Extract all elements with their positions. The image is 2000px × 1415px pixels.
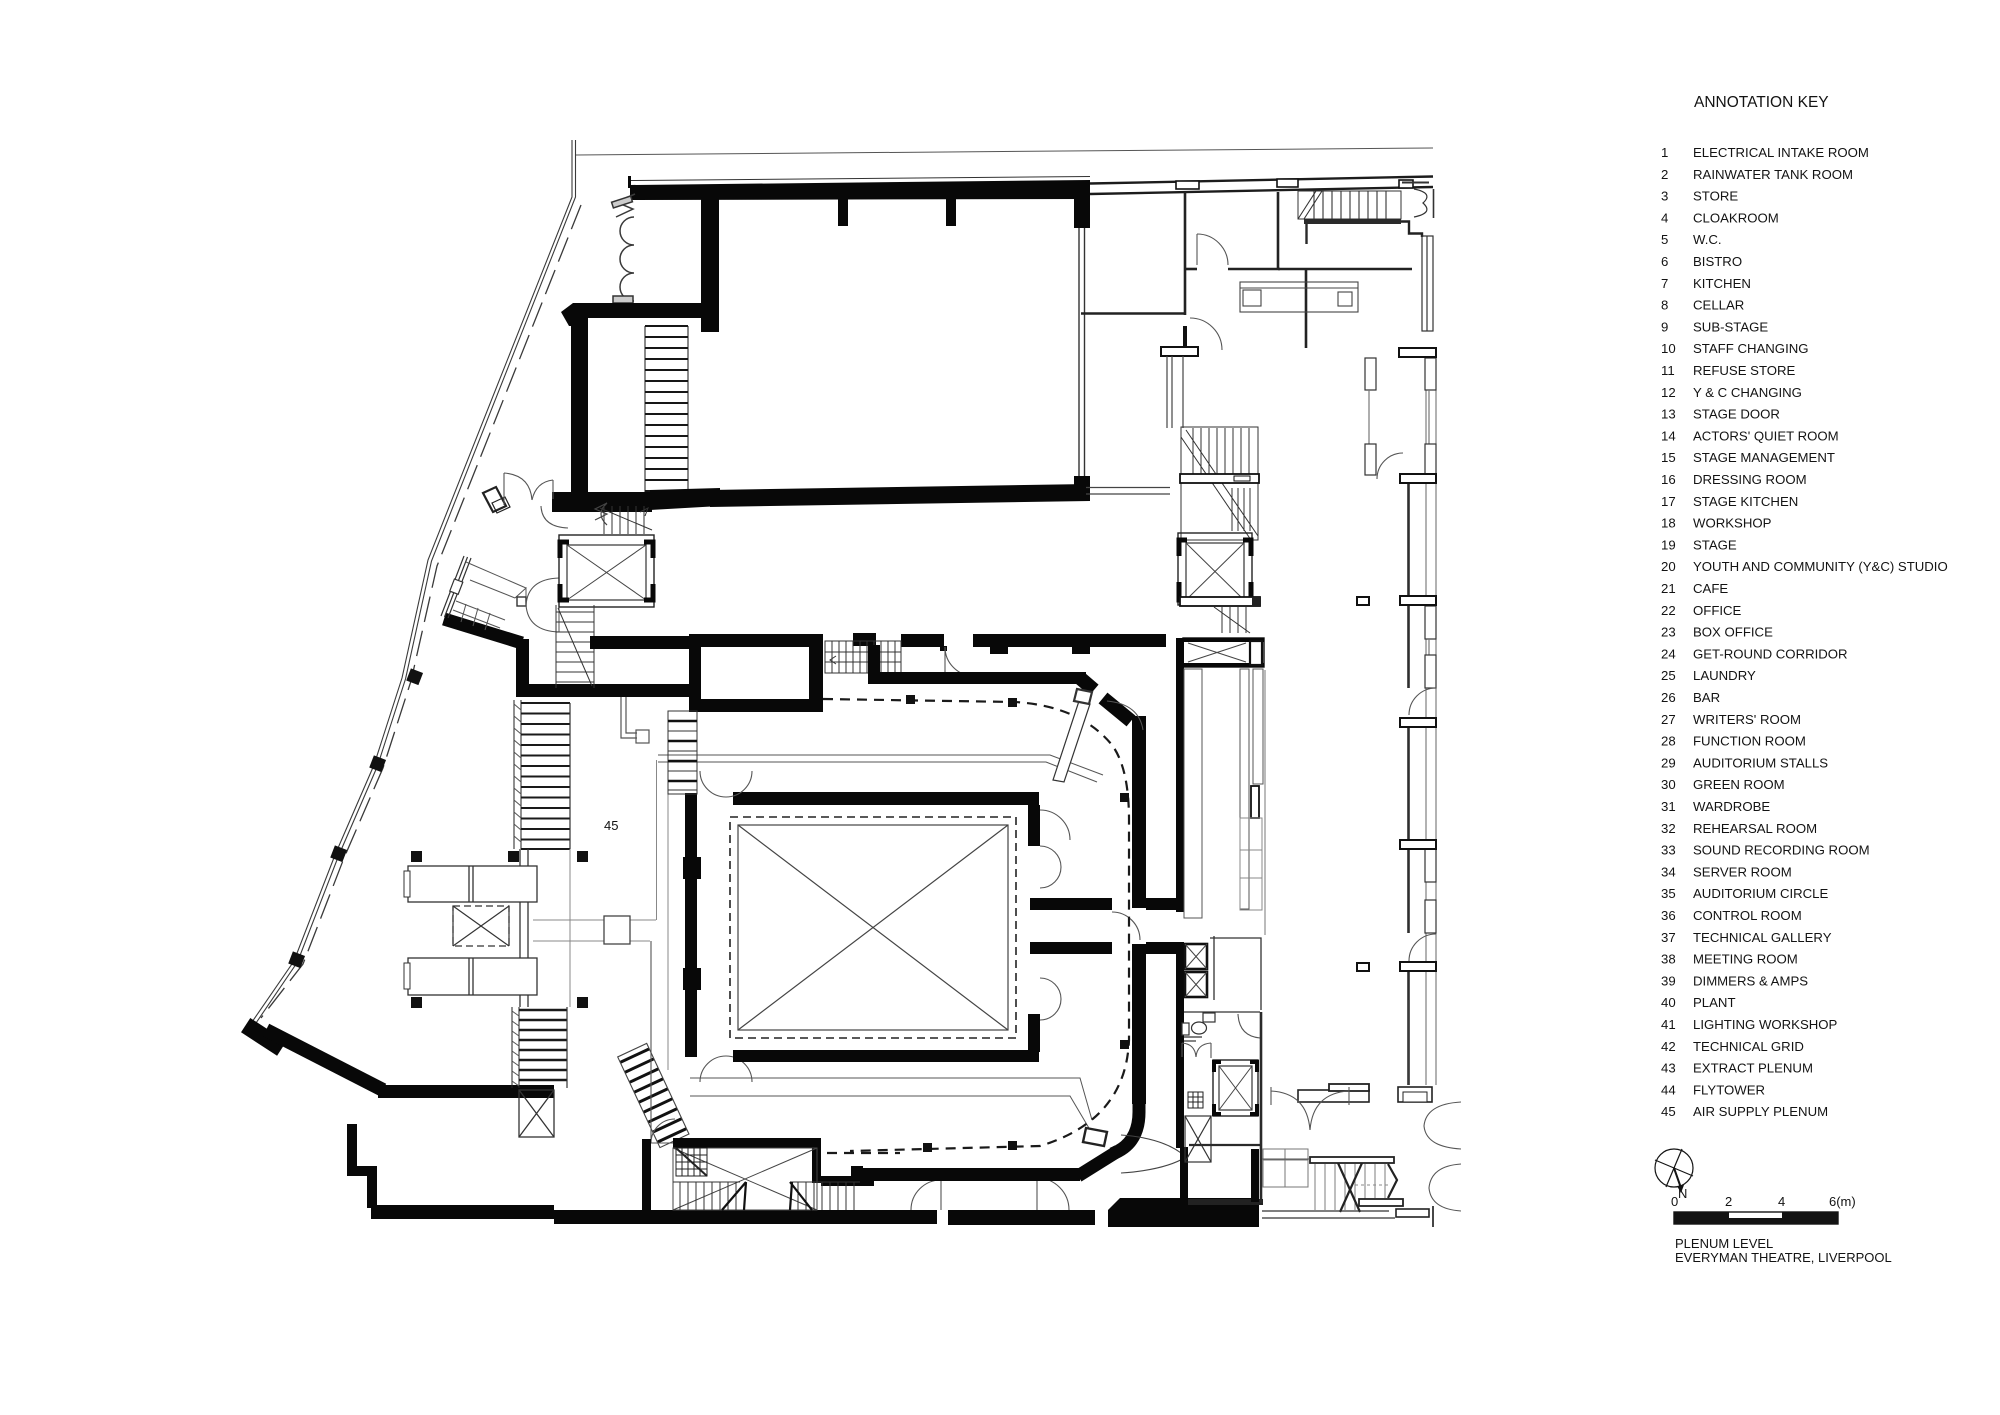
svg-text:20: 20 [1661,559,1676,574]
svg-text:STAGE MANAGEMENT: STAGE MANAGEMENT [1693,450,1835,465]
svg-text:30: 30 [1661,777,1676,792]
svg-text:EXTRACT PLENUM: EXTRACT PLENUM [1693,1061,1813,1076]
svg-text:BAR: BAR [1693,690,1720,705]
svg-text:10: 10 [1661,341,1676,356]
svg-text:Y & C CHANGING: Y & C CHANGING [1693,385,1802,400]
svg-text:W.C.: W.C. [1693,232,1722,247]
svg-text:22: 22 [1661,603,1676,618]
svg-text:REHEARSAL ROOM: REHEARSAL ROOM [1693,821,1817,836]
svg-text:14: 14 [1661,428,1676,443]
svg-text:STORE: STORE [1693,189,1738,204]
svg-text:42: 42 [1661,1039,1676,1054]
svg-text:N: N [1678,1186,1687,1201]
svg-text:WORKSHOP: WORKSHOP [1693,516,1772,531]
svg-text:SOUND RECORDING ROOM: SOUND RECORDING ROOM [1693,843,1870,858]
svg-text:40: 40 [1661,995,1676,1010]
svg-text:SUB-STAGE: SUB-STAGE [1693,319,1768,334]
svg-text:43: 43 [1661,1061,1676,1076]
svg-text:25: 25 [1661,668,1676,683]
svg-text:BOX OFFICE: BOX OFFICE [1693,625,1773,640]
svg-text:REFUSE STORE: REFUSE STORE [1693,363,1796,378]
svg-text:AIR SUPPLY PLENUM: AIR SUPPLY PLENUM [1693,1104,1828,1119]
svg-text:26: 26 [1661,690,1676,705]
svg-text:FLYTOWER: FLYTOWER [1693,1082,1765,1097]
svg-text:2: 2 [1661,167,1668,182]
svg-text:WRITERS' ROOM: WRITERS' ROOM [1693,712,1801,727]
svg-text:5: 5 [1661,232,1668,247]
svg-text:GET-ROUND CORRIDOR: GET-ROUND CORRIDOR [1693,646,1848,661]
svg-text:CAFE: CAFE [1693,581,1728,596]
svg-text:28: 28 [1661,734,1676,749]
svg-text:4: 4 [1661,210,1668,225]
svg-text:CONTROL ROOM: CONTROL ROOM [1693,908,1802,923]
svg-text:DIMMERS & AMPS: DIMMERS & AMPS [1693,973,1808,988]
svg-text:CLOAKROOM: CLOAKROOM [1693,210,1779,225]
svg-text:KITCHEN: KITCHEN [1693,276,1751,291]
svg-text:11: 11 [1661,363,1675,378]
svg-text:LIGHTING WORKSHOP: LIGHTING WORKSHOP [1693,1017,1838,1032]
svg-text:STAGE: STAGE [1693,537,1737,552]
svg-text:AUDITORIUM CIRCLE: AUDITORIUM CIRCLE [1693,886,1829,901]
svg-text:6(m): 6(m) [1829,1194,1856,1209]
svg-text:WARDROBE: WARDROBE [1693,799,1770,814]
svg-text:16: 16 [1661,472,1676,487]
svg-text:2: 2 [1725,1194,1732,1209]
svg-text:PLENUM LEVEL: PLENUM LEVEL [1675,1236,1773,1251]
svg-text:LAUNDRY: LAUNDRY [1693,668,1756,683]
svg-text:27: 27 [1661,712,1676,727]
svg-text:1: 1 [1661,145,1668,160]
svg-text:YOUTH AND COMMUNITY (Y&C) STUD: YOUTH AND COMMUNITY (Y&C) STUDIO [1693,559,1948,574]
svg-text:DRESSING ROOM: DRESSING ROOM [1693,472,1807,487]
svg-text:44: 44 [1661,1082,1676,1097]
svg-text:4: 4 [1778,1194,1785,1209]
svg-text:EVERYMAN THEATRE, LIVERPOOL: EVERYMAN THEATRE, LIVERPOOL [1675,1250,1892,1265]
svg-text:39: 39 [1661,973,1676,988]
svg-text:45: 45 [1661,1104,1676,1119]
svg-text:BISTRO: BISTRO [1693,254,1742,269]
svg-text:45: 45 [604,818,618,833]
svg-text:18: 18 [1661,516,1676,531]
svg-text:19: 19 [1661,537,1676,552]
svg-text:SERVER ROOM: SERVER ROOM [1693,864,1792,879]
svg-text:17: 17 [1661,494,1676,509]
svg-text:CELLAR: CELLAR [1693,298,1744,313]
svg-text:FUNCTION ROOM: FUNCTION ROOM [1693,734,1806,749]
svg-text:ACTORS' QUIET ROOM: ACTORS' QUIET ROOM [1693,428,1839,443]
svg-text:8: 8 [1661,298,1668,313]
svg-text:38: 38 [1661,952,1676,967]
svg-text:32: 32 [1661,821,1676,836]
svg-text:STAFF CHANGING: STAFF CHANGING [1693,341,1809,356]
svg-text:23: 23 [1661,625,1676,640]
svg-text:41: 41 [1661,1017,1676,1032]
svg-text:GREEN ROOM: GREEN ROOM [1693,777,1785,792]
svg-text:31: 31 [1661,799,1676,814]
svg-text:13: 13 [1661,407,1676,422]
svg-text:34: 34 [1661,864,1676,879]
svg-text:ANNOTATION KEY: ANNOTATION KEY [1694,94,1829,111]
svg-text:TECHNICAL GRID: TECHNICAL GRID [1693,1039,1804,1054]
svg-text:21: 21 [1661,581,1676,596]
svg-text:29: 29 [1661,755,1676,770]
svg-text:37: 37 [1661,930,1676,945]
svg-text:36: 36 [1661,908,1676,923]
svg-text:35: 35 [1661,886,1676,901]
svg-text:12: 12 [1661,385,1676,400]
svg-text:MEETING ROOM: MEETING ROOM [1693,952,1798,967]
svg-text:STAGE KITCHEN: STAGE KITCHEN [1693,494,1798,509]
svg-text:STAGE DOOR: STAGE DOOR [1693,407,1780,422]
svg-text:RAINWATER TANK ROOM: RAINWATER TANK ROOM [1693,167,1853,182]
svg-text:3: 3 [1661,189,1668,204]
svg-text:ELECTRICAL INTAKE ROOM: ELECTRICAL INTAKE ROOM [1693,145,1869,160]
svg-text:7: 7 [1661,276,1668,291]
svg-text:6: 6 [1661,254,1668,269]
svg-text:OFFICE: OFFICE [1693,603,1742,618]
svg-text:PLANT: PLANT [1693,995,1736,1010]
svg-text:24: 24 [1661,646,1676,661]
svg-text:33: 33 [1661,843,1676,858]
svg-text:AUDITORIUM STALLS: AUDITORIUM STALLS [1693,755,1828,770]
svg-text:15: 15 [1661,450,1676,465]
svg-text:TECHNICAL GALLERY: TECHNICAL GALLERY [1693,930,1832,945]
svg-text:0: 0 [1671,1194,1678,1209]
svg-text:9: 9 [1661,319,1668,334]
